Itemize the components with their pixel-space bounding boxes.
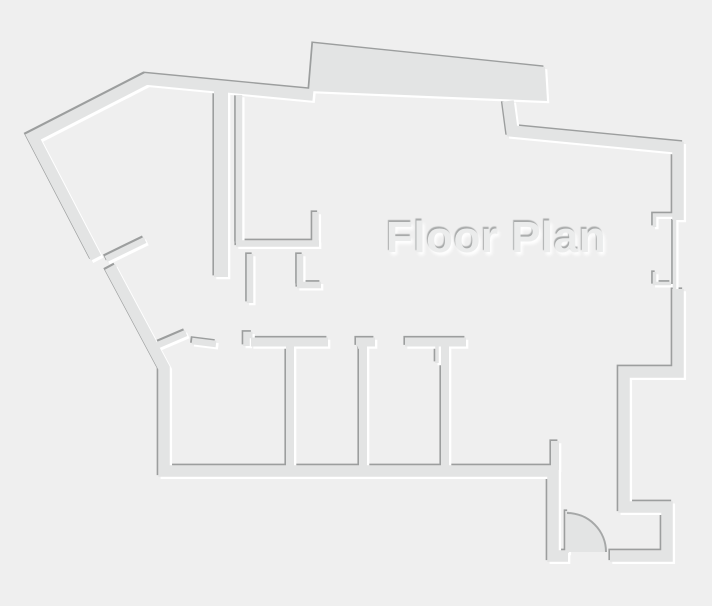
floor-plan-canvas: Floor Plan [0,0,712,606]
floor-plan-title: Floor Plan [386,216,606,260]
floor-plan-drawing [0,0,712,606]
